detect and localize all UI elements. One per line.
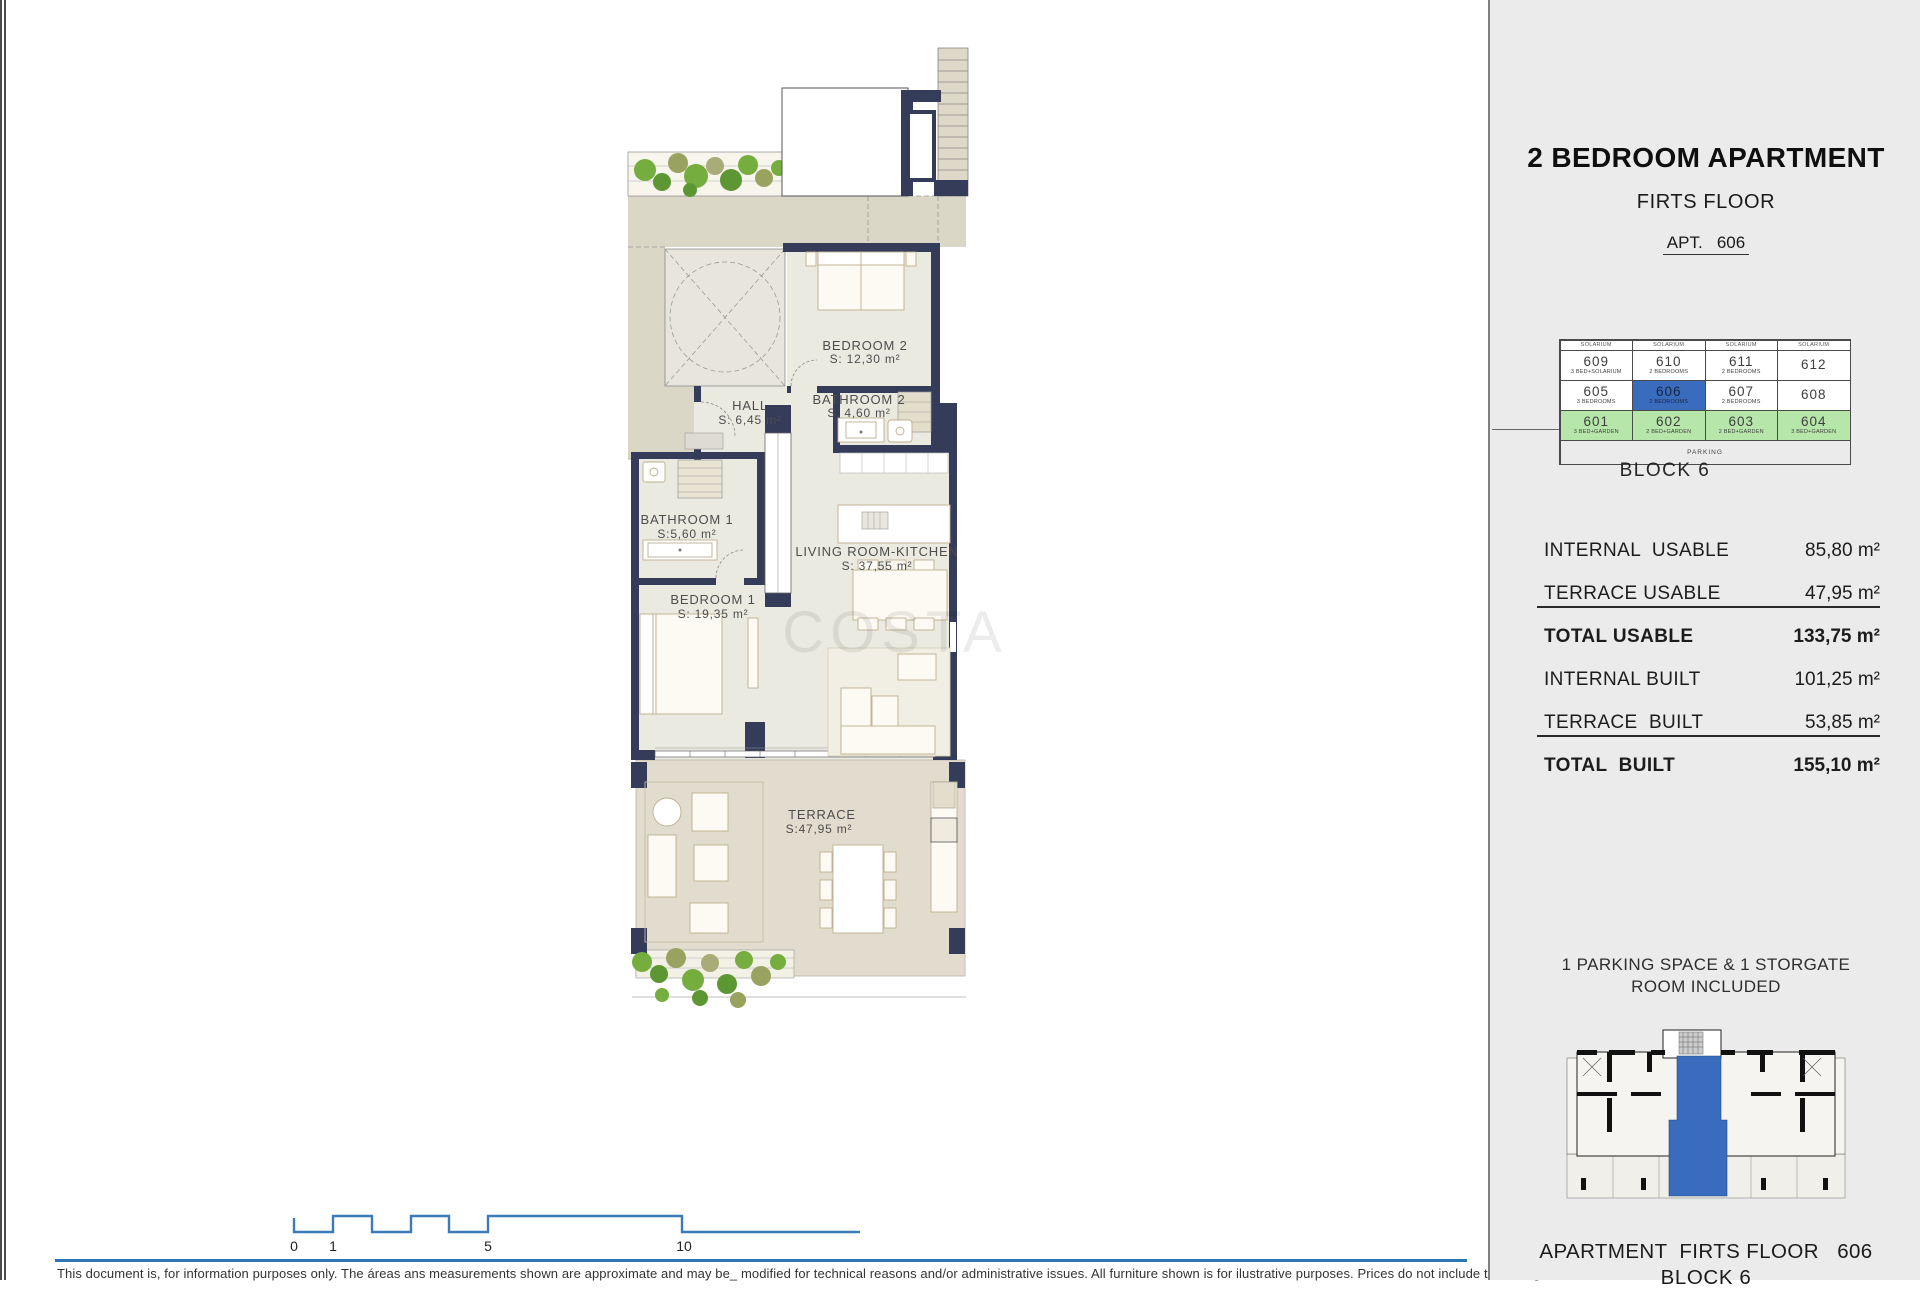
info-panel: 2 BEDROOM APARTMENT FIRTS FLOOR APT. 606… — [1488, 0, 1920, 1280]
unit-cell-603: 6032 BED+GARDEN — [1705, 410, 1779, 441]
unit-cell-610: 6102 BEDROOMS — [1632, 350, 1706, 381]
room-area-living: S: 37,55 m² — [842, 559, 913, 573]
floorplan-brochure-page: { "page": { "watermark": "COSTA", "discl… — [0, 0, 1920, 1280]
area-row-internal-built: INTERNAL BUILT101,25 m² — [1537, 669, 1880, 691]
room-label-hall: HALL — [732, 398, 768, 413]
block-unit-grid: SOLARIUM SOLARIUM SOLARIUM SOLARIUM 6093… — [1559, 339, 1851, 465]
unit-cell-601: 6013 BED+GARDEN — [1560, 410, 1634, 441]
apt-number-label: APT. 606 — [1490, 233, 1920, 253]
room-label-terrace: TERRACE — [788, 807, 856, 822]
unit-cell-604: 6043 BED+GARDEN — [1777, 410, 1851, 441]
block-caption: BLOCK 6 — [1530, 460, 1800, 482]
unit-cell-607: 6072 BEDROOMS — [1705, 380, 1779, 411]
room-label-bathroom2: BATHROOM 2 — [813, 392, 906, 407]
sum-rule — [1537, 606, 1880, 608]
grid-extension-line — [1492, 429, 1559, 430]
wardrobe — [765, 433, 791, 593]
room-area-hall: S: 6,45 m² — [718, 413, 781, 427]
room-area-bedroom1: S: 19,35 m² — [678, 607, 749, 621]
panel-footer-block: BLOCK 6 — [1490, 1266, 1920, 1290]
floorplan-svg: COSTA BEDROOM 2 S: 12,30 m² BATHROOM 2 S… — [615, 40, 1017, 1032]
unit-cell-606-highlighted: 6062 BEDROOMS — [1632, 380, 1706, 411]
scale-tick-5: 5 — [484, 1238, 492, 1254]
scale-tick-1: 1 — [329, 1238, 337, 1254]
parking-note-line2: ROOM INCLUDED — [1490, 977, 1920, 997]
unit-cell-612: 612 — [1777, 350, 1851, 381]
floorplan-drawing: COSTA BEDROOM 2 S: 12,30 m² BATHROOM 2 S… — [615, 40, 1017, 1032]
area-row-total-usable: TOTAL USABLE133,75 m² — [1537, 626, 1880, 648]
panel-footer-apartment: APARTMENT FIRTS FLOOR 606 — [1490, 1240, 1920, 1264]
room-label-bathroom1: BATHROOM 1 — [641, 512, 734, 527]
scale-tick-10: 10 — [676, 1238, 692, 1254]
page-border-outer — [0, 0, 2, 1280]
building-key-plan — [1561, 1028, 1851, 1213]
stairwell-core — [782, 48, 968, 196]
area-row-internal-usable: INTERNAL USABLE85,80 m² — [1537, 540, 1880, 562]
room-area-bathroom2: S: 4,60 m² — [827, 406, 890, 420]
bottom-divider-rule — [55, 1259, 1467, 1262]
parking-note-line1: 1 PARKING SPACE & 1 STORGATE — [1490, 955, 1920, 975]
scale-bar-line — [294, 1216, 860, 1232]
shaft-skylight — [665, 249, 785, 386]
highlighted-unit-606 — [1669, 1056, 1727, 1196]
scale-tick-0: 0 — [290, 1238, 298, 1254]
room-label-living: LIVING ROOM-KITCHEN — [795, 544, 958, 559]
watermark-text: COSTA — [782, 600, 1008, 665]
unit-cell-608: 608 — [1777, 380, 1851, 411]
room-label-bedroom1: BEDROOM 1 — [670, 592, 755, 607]
page-border-inner — [4, 0, 6, 1280]
room-area-bathroom1: S:5,60 m² — [657, 527, 716, 541]
room-area-bedroom2: S: 12,30 m² — [830, 352, 901, 366]
unit-cell-611: 6112 BEDROOMS — [1705, 350, 1779, 381]
room-label-bedroom2: BEDROOM 2 — [822, 338, 907, 353]
unit-cell-602: 6022 BED+GARDEN — [1632, 410, 1706, 441]
area-row-terrace-built: TERRACE BUILT53,85 m² — [1537, 712, 1880, 734]
scale-bar: 0 1 5 10 — [280, 1200, 880, 1260]
area-row-total-built: TOTAL BUILT155,10 m² — [1537, 755, 1880, 777]
sum-rule — [1537, 735, 1880, 737]
unit-cell-605: 6053 BEDROOMS — [1560, 380, 1634, 411]
page-title: 2 BEDROOM APARTMENT — [1490, 142, 1920, 174]
planter-top — [628, 152, 788, 197]
floor-subtitle: FIRTS FLOOR — [1490, 191, 1920, 214]
room-area-terrace: S:47,95 m² — [786, 822, 853, 836]
unit-cell-609: 6093 BED+SOLARIUM — [1560, 350, 1634, 381]
area-row-terrace-usable: TERRACE USABLE47,95 m² — [1537, 583, 1880, 605]
